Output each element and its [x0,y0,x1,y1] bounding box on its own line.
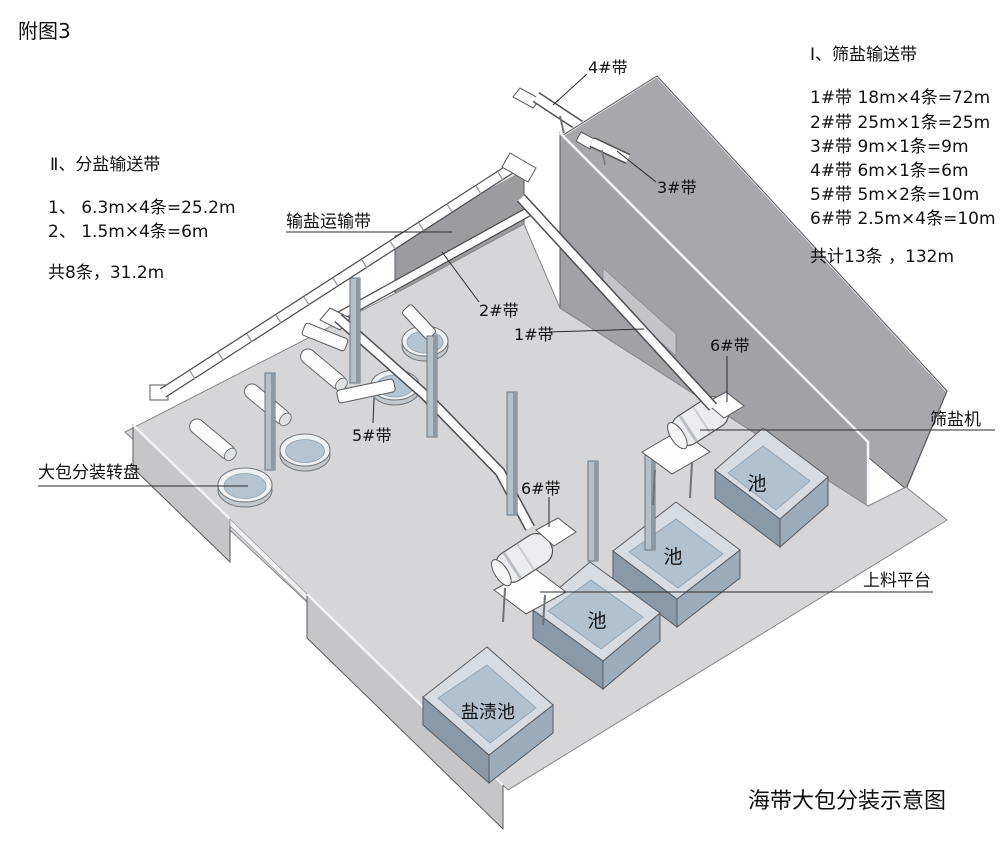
label-belt1: 1#带 [514,325,554,344]
label-belt3: 3#带 [657,178,697,197]
legend-right-heading: Ⅰ、筛盐输送带 [810,45,917,65]
legend-right-item-4: 4#带 6m×1条=6m [810,161,969,181]
post-2 [350,278,360,383]
leader-belt4 [553,74,587,105]
label-platform: 上料平台 [863,571,931,591]
label-tank-3: 池 [587,610,606,632]
legend-right: Ⅰ、筛盐输送带 1#带 18m×4条=72m 2#带 25m×1条=25m 3#… [810,45,996,267]
legend-right-item-2: 2#带 25m×1条=25m [810,113,990,133]
legend-right-item-1: 1#带 18m×4条=72m [810,88,990,108]
legend-left-total: 共8条，31.2m [48,263,164,283]
post-1 [265,373,275,470]
page-title: 海带大包分装示意图 [748,789,946,814]
turntable-1 [218,468,272,507]
label-salt-transport: 输盐运输带 [286,212,371,232]
label-turntable: 大包分装转盘 [38,463,140,483]
post-4 [507,392,517,515]
post-3 [427,336,437,437]
facility-diagram: 附图3 4#带 3#带 输盐运输带 2#带 1#带 5#带 6#带 6#带 筛盐… [0,0,1000,843]
legend-right-total: 共计13条 ，132m [810,247,954,267]
label-belt6-right: 6#带 [710,336,750,355]
legend-right-item-3: 3#带 9m×1条=9m [810,137,969,157]
legend-left-item-1: 1、 6.3m×4条=25.2m [48,198,236,218]
label-belt5: 5#带 [352,426,392,445]
label-tank-2: 池 [663,546,682,568]
legend-left-heading: Ⅱ、分盐输送带 [50,155,160,175]
label-tank-1: 池 [747,473,766,495]
legend-left-item-2: 2、 1.5m×4条=6m [48,222,209,242]
post-5 [588,461,598,561]
label-sieve-machine: 筛盐机 [930,410,981,430]
label-belt2: 2#带 [479,301,519,320]
legend-right-item-5: 5#带 5m×2条=10m [810,185,979,205]
legend-left: Ⅱ、分盐输送带 1、 6.3m×4条=25.2m 2、 1.5m×4条=6m 共… [48,155,236,283]
diagram-page: 附图3 4#带 3#带 输盐运输带 2#带 1#带 5#带 6#带 6#带 筛盐… [0,0,1000,843]
legend-right-item-6: 6#带 2.5m×4条=10m [810,209,996,229]
turntable-2 [280,434,330,471]
label-belt6-center: 6#带 [521,479,561,498]
label-belt4: 4#带 [588,58,628,77]
figure-tag: 附图3 [18,19,71,43]
label-salt-pickle-tank: 盐渍池 [461,702,515,723]
